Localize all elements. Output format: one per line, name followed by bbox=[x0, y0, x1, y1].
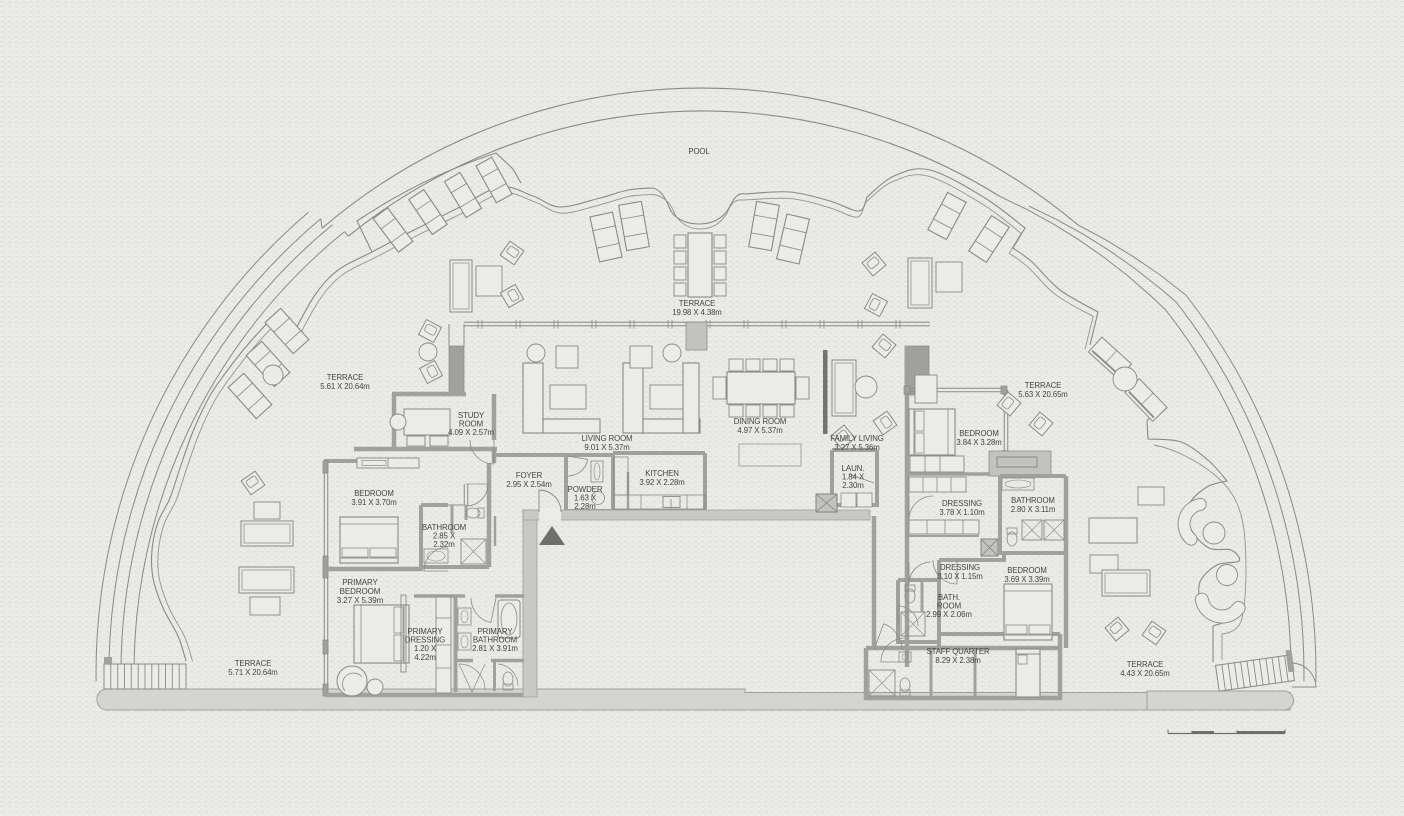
svg-text:TERRACE: TERRACE bbox=[679, 299, 716, 308]
svg-text:4.43 X 20.65m: 4.43 X 20.65m bbox=[1120, 669, 1169, 678]
svg-text:TERRACE: TERRACE bbox=[1025, 381, 1062, 390]
svg-text:BEDROOM: BEDROOM bbox=[340, 587, 381, 596]
svg-text:4.97 X 5.37m: 4.97 X 5.37m bbox=[737, 426, 782, 435]
svg-text:5.61 X 20.64m: 5.61 X 20.64m bbox=[320, 382, 369, 391]
svg-text:PRIMARY: PRIMARY bbox=[342, 578, 378, 587]
svg-text:3.27 X 5.39m: 3.27 X 5.39m bbox=[337, 596, 384, 605]
svg-text:2.80 X 3.11m: 2.80 X 3.11m bbox=[1011, 505, 1056, 514]
svg-text:2.99 X 2.06m: 2.99 X 2.06m bbox=[926, 610, 972, 619]
svg-text:3.27 X 5.36m: 3.27 X 5.36m bbox=[834, 443, 879, 452]
svg-text:2.81 X 3.91m: 2.81 X 3.91m bbox=[472, 644, 518, 653]
svg-text:TERRACE: TERRACE bbox=[327, 373, 364, 382]
svg-text:LIVING ROOM: LIVING ROOM bbox=[582, 434, 633, 443]
svg-text:STAFF QUARTER: STAFF QUARTER bbox=[927, 647, 990, 656]
svg-text:BEDROOM: BEDROOM bbox=[959, 429, 999, 438]
svg-text:FAMILY LIVING: FAMILY LIVING bbox=[830, 434, 883, 443]
svg-text:FOYER: FOYER bbox=[516, 471, 543, 480]
svg-text:5.63 X 20.65m: 5.63 X 20.65m bbox=[1018, 390, 1067, 399]
svg-text:2.30m: 2.30m bbox=[842, 481, 864, 490]
svg-text:DRESSING: DRESSING bbox=[942, 499, 982, 508]
svg-text:9.01 X 5.37m: 9.01 X 5.37m bbox=[584, 443, 629, 452]
svg-text:4.09 X 2.57m: 4.09 X 2.57m bbox=[448, 428, 494, 437]
svg-text:BEDROOM: BEDROOM bbox=[354, 489, 394, 498]
svg-text:2.95 X 2.54m: 2.95 X 2.54m bbox=[506, 480, 551, 489]
svg-text:DRESSING: DRESSING bbox=[940, 563, 980, 572]
svg-text:5.71 X 20.64m: 5.71 X 20.64m bbox=[228, 668, 277, 677]
svg-text:TERRACE: TERRACE bbox=[235, 659, 272, 668]
svg-text:3.78 X 1.10m: 3.78 X 1.10m bbox=[939, 508, 984, 517]
svg-text:POOL: POOL bbox=[688, 147, 710, 156]
svg-text:3.84 X 3.28m: 3.84 X 3.28m bbox=[956, 438, 1001, 447]
svg-text:3.92 X 2.28m: 3.92 X 2.28m bbox=[639, 478, 684, 487]
svg-text:19.98 X 4.38m: 19.98 X 4.38m bbox=[672, 308, 721, 317]
svg-text:3.69 X 3.39m: 3.69 X 3.39m bbox=[1004, 575, 1049, 584]
svg-text:8.29 X 2.38m: 8.29 X 2.38m bbox=[935, 656, 980, 665]
svg-text:4.22m: 4.22m bbox=[414, 653, 436, 662]
svg-text:2.32m: 2.32m bbox=[433, 540, 455, 549]
svg-text:BATHROOM: BATHROOM bbox=[1011, 496, 1055, 505]
svg-text:BEDROOM: BEDROOM bbox=[1007, 566, 1047, 575]
svg-text:KITCHEN: KITCHEN bbox=[645, 469, 679, 478]
svg-text:DINING ROOM: DINING ROOM bbox=[734, 417, 787, 426]
svg-text:3.10 X 1.15m: 3.10 X 1.15m bbox=[937, 572, 982, 581]
svg-text:2.28m: 2.28m bbox=[574, 502, 596, 511]
svg-text:TERRACE: TERRACE bbox=[1127, 660, 1164, 669]
svg-text:3.91 X 3.70m: 3.91 X 3.70m bbox=[351, 498, 396, 507]
